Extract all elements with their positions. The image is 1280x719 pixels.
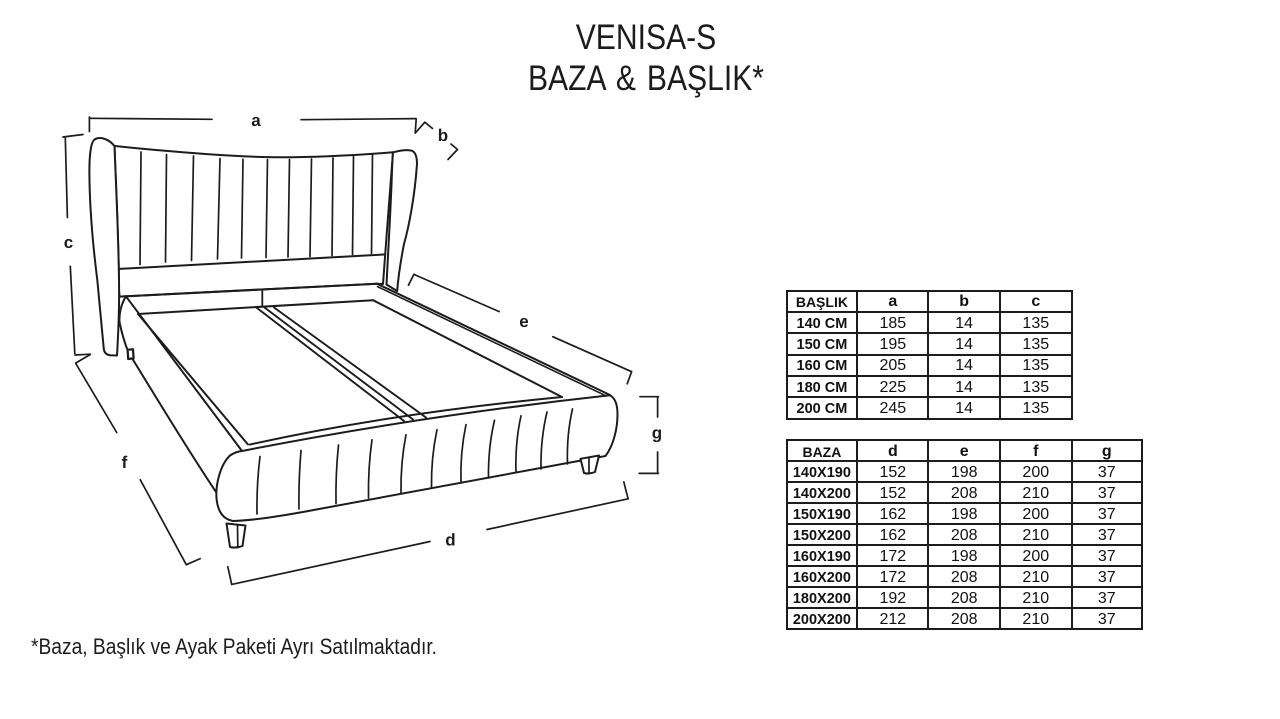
svg-text:f: f	[122, 453, 128, 472]
svg-text:g: g	[652, 424, 662, 443]
svg-text:b: b	[438, 126, 448, 145]
svg-text:a: a	[251, 111, 261, 130]
svg-text:d: d	[445, 531, 455, 550]
svg-text:c: c	[64, 233, 73, 252]
svg-text:e: e	[519, 312, 528, 331]
